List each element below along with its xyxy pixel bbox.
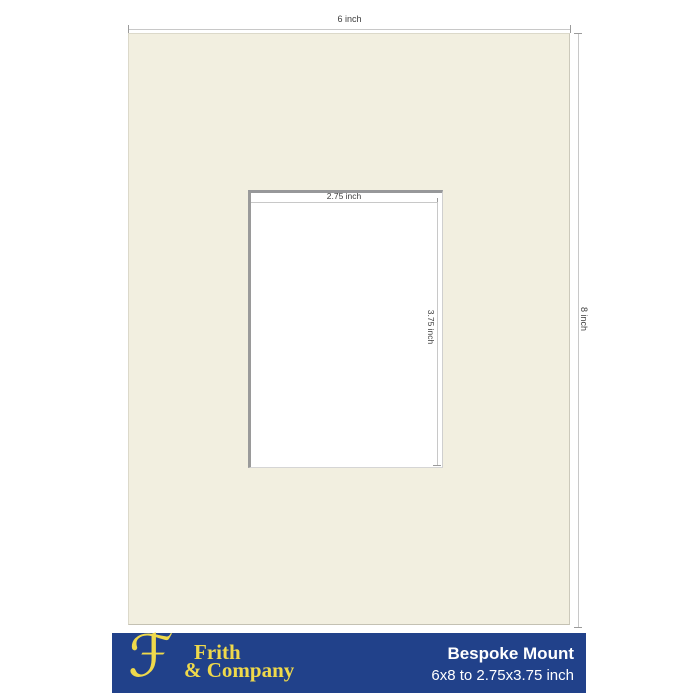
outer-width-tick-right [570,25,571,33]
aperture-window [248,190,443,468]
aperture-height-label: 3.75 inch [426,299,436,355]
outer-width-tick-left [128,25,129,33]
footer-bar: ℱ Frith & Company Bespoke Mount 6x8 to 2… [112,633,586,693]
brand-name: Frith & Company [184,643,294,680]
brand-name-line2: & Company [184,661,294,680]
product-size: 6x8 to 2.75x3.75 inch [431,664,574,687]
aperture-height-line [437,202,438,466]
brand-logo: ℱ Frith & Company [126,633,306,693]
outer-width-label: 6 inch [128,14,571,24]
outer-width-line [128,29,571,30]
product-diagram: 6 inch 8 inch 2.75 inch 3.75 inch ℱ Frit… [0,0,700,700]
outer-height-label: 8 inch [579,289,589,349]
outer-height-tick-bottom [574,627,582,628]
product-info: Bespoke Mount 6x8 to 2.75x3.75 inch [431,644,574,687]
brand-script-f-monogram: ℱ [128,626,174,686]
aperture-width-line [251,202,437,203]
outer-height-tick-top [574,33,582,34]
product-title: Bespoke Mount [431,644,574,664]
aperture-width-label: 2.75 inch [251,191,437,201]
aperture-height-tick-bottom [433,465,441,466]
